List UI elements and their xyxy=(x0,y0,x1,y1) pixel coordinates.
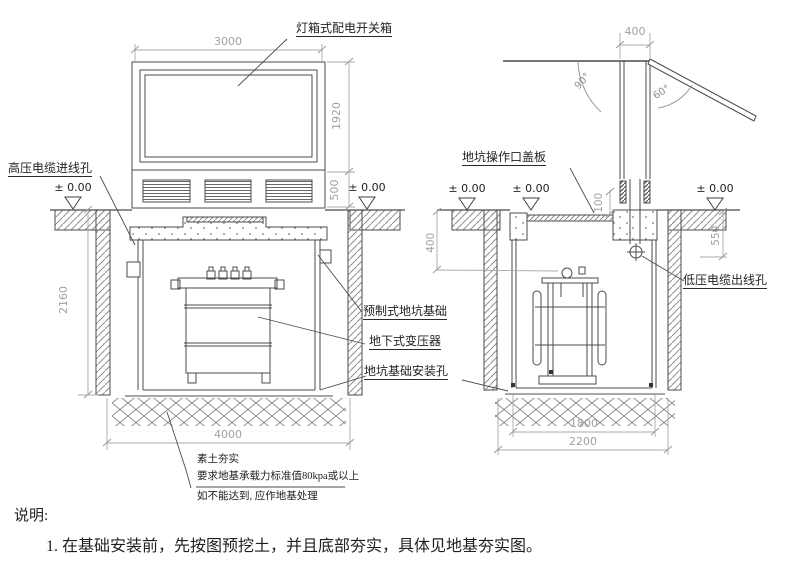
precast-foundation-label: 预制式地坑基础 xyxy=(363,305,447,320)
foundation-note-1: 素土夯实 xyxy=(197,454,239,466)
dim-hole-depth-left: 400 xyxy=(426,223,438,263)
notes-heading: 说明: xyxy=(14,508,48,525)
level-ground-2: ± 0.00 xyxy=(337,182,397,194)
foundation-note-3: 如不能达到, 应作地基处理 xyxy=(197,491,318,503)
pit-mounting-hole-label: 地坑基础安装孔 xyxy=(364,365,448,380)
dim-pit-depth: 2160 xyxy=(58,280,70,320)
side-view xyxy=(437,59,756,426)
level-ground-3: ± 0.00 xyxy=(437,183,497,195)
drawing-linework xyxy=(0,0,790,570)
pit-cover-label: 地坑操作口盖板 xyxy=(462,151,546,166)
dim-excavation-width-front: 4000 xyxy=(203,429,253,441)
switch-box-label: 灯箱式配电开关箱 xyxy=(296,22,392,37)
level-ground-1: ± 0.00 xyxy=(43,182,103,194)
front-view xyxy=(50,62,405,426)
lv-cable-hole-label: 低压电缆出线孔 xyxy=(683,274,767,289)
dim-pit-width-side: 1800 xyxy=(559,418,609,430)
installation-drawing: 灯箱式配电开关箱 高压电缆进线孔 地坑操作口盖板 低压电缆出线孔 预制式地坑基础… xyxy=(0,0,790,570)
bushings xyxy=(207,267,251,279)
dim-cabinet-height: 1920 xyxy=(331,96,343,136)
dim-excavation-width-side: 2200 xyxy=(558,436,608,448)
dim-front-width: 3000 xyxy=(205,36,251,48)
dim-hole-depth-right: 550 xyxy=(711,216,723,256)
notes-item-1: 1. 在基础安装前，先按图预挖土，并且底部夯实，具体见地基夯实图。 xyxy=(46,538,542,556)
level-ground-4: ± 0.00 xyxy=(501,183,561,195)
underground-transformer-label: 地下式变压器 xyxy=(369,335,441,350)
foundation-note-2: 要求地基承载力标准值80kpa或以上 xyxy=(197,471,359,483)
level-ground-5: ± 0.00 xyxy=(685,183,745,195)
dim-pole-width: 400 xyxy=(610,26,660,38)
hv-cable-hole-label: 高压电缆进线孔 xyxy=(8,162,92,177)
dim-cover-step: 100 xyxy=(594,183,606,223)
dim-base-height: 500 xyxy=(329,170,341,210)
